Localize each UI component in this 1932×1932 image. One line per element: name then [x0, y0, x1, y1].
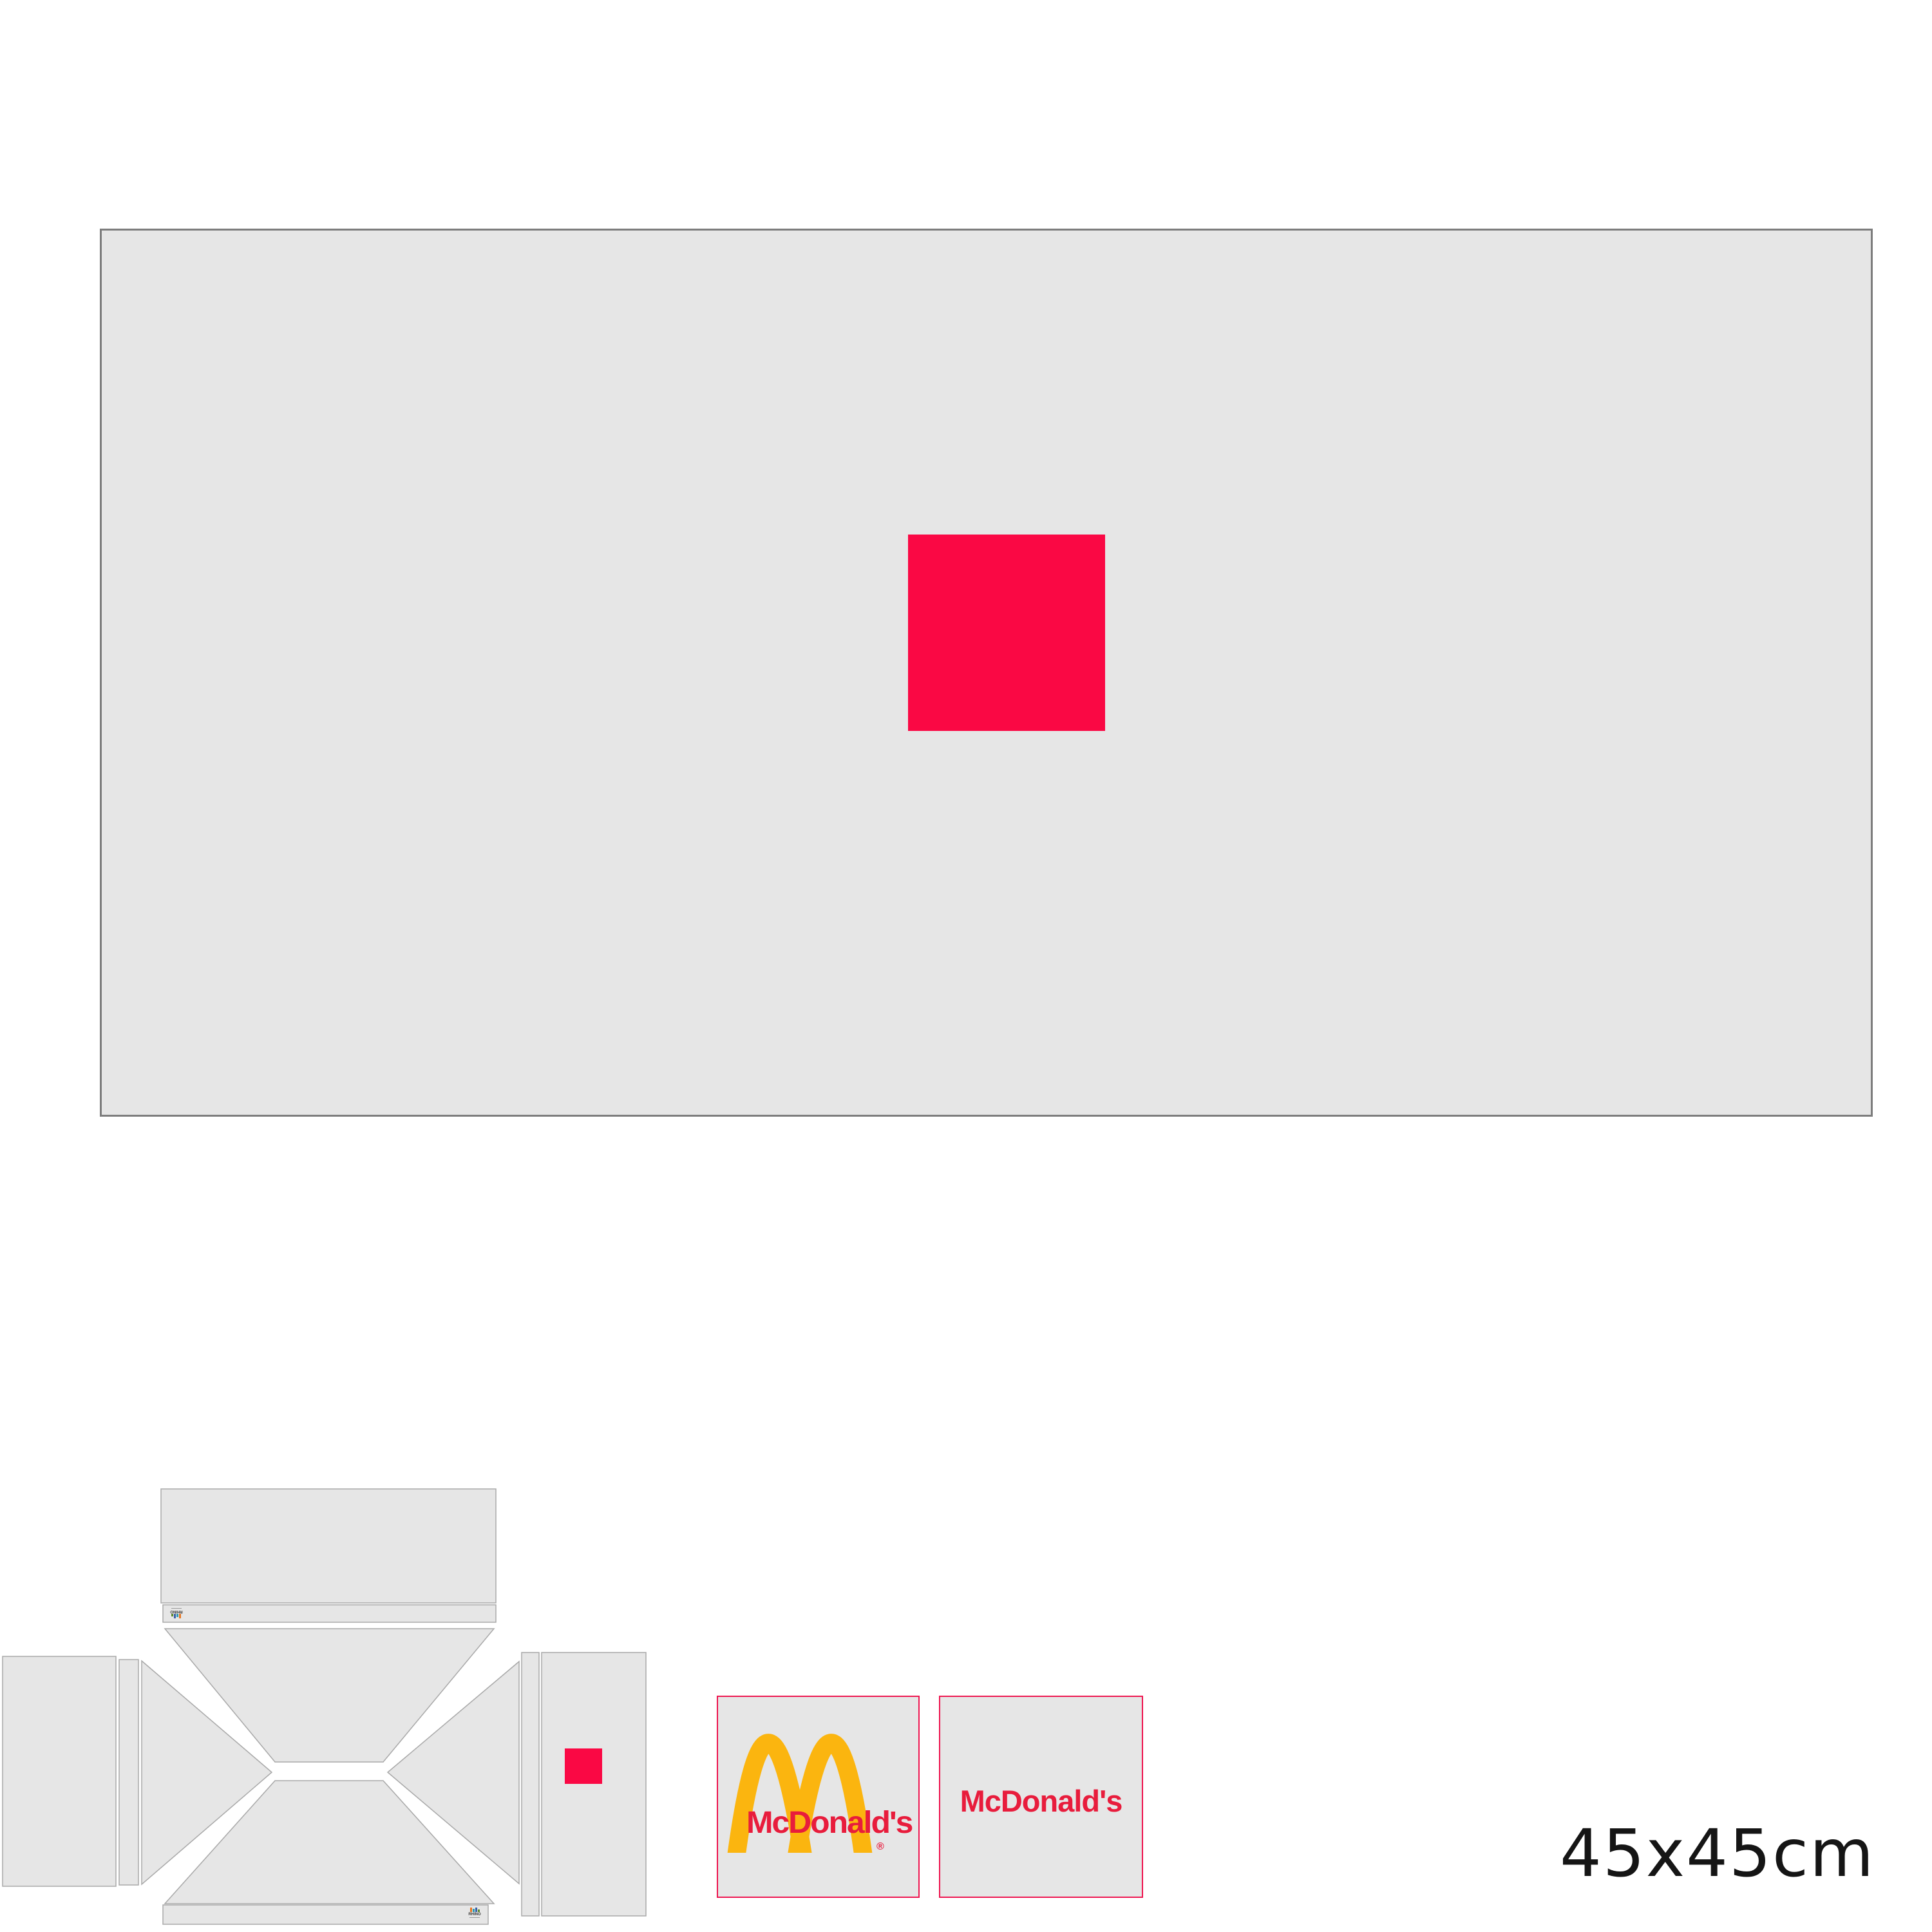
printer-mark-icon: RHINO	[168, 1607, 185, 1620]
die-bottom-glue-strip	[163, 1905, 488, 1924]
printer-mark-microtext	[171, 1608, 182, 1609]
die-top-flap-panel	[161, 1489, 496, 1603]
printer-mark-color-glyph	[172, 1614, 182, 1618]
die-left-glue-strip	[119, 1660, 138, 1885]
mcdonalds-logo-tile: McDonald's ®	[717, 1696, 920, 1898]
die-left-flap-panel	[3, 1656, 116, 1886]
size-label: 45x45cm	[1560, 1821, 1875, 1887]
artboard: RHINO RHINO McDonald's ® McDonald's 45x4…	[0, 0, 1932, 1932]
registered-trademark-symbol: ®	[876, 1841, 884, 1853]
die-top-glue-strip	[163, 1605, 496, 1622]
printer-mark-microtext	[469, 1917, 480, 1918]
printer-mark-color-glyph	[470, 1908, 480, 1912]
die-right-glue-strip	[522, 1653, 539, 1916]
box-dieline	[0, 1481, 663, 1932]
mcdonalds-wordmark: McDonald's	[746, 1808, 912, 1839]
printer-mark-icon: RHINO	[466, 1906, 483, 1919]
die-right-flap-panel	[542, 1653, 646, 1916]
mcdonalds-wordmark-tile: McDonald's	[939, 1696, 1143, 1898]
print-sheet-red-square	[908, 535, 1105, 731]
mcdonalds-wordmark: McDonald's	[940, 1786, 1142, 1816]
die-red-square	[565, 1748, 602, 1784]
printer-mark-label: RHINO	[468, 1913, 480, 1917]
printer-mark-label: RHINO	[170, 1609, 182, 1613]
